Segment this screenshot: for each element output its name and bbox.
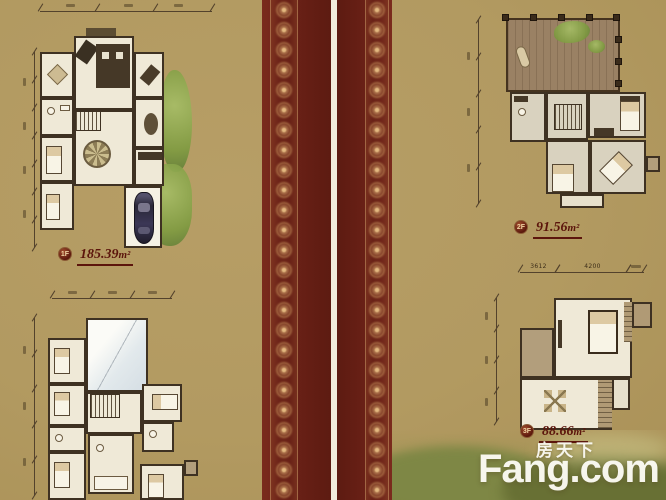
floor2-label: 2F 91.56m²: [514, 220, 582, 239]
dimension-segment: [520, 272, 557, 273]
toilet: [47, 107, 55, 115]
dimension-number-smudge: [23, 122, 26, 130]
dimension-line-top: [52, 298, 172, 299]
dimension-segment: [628, 272, 644, 273]
dimension-number: 3612: [520, 263, 557, 270]
dimension-number-smudge: [485, 356, 488, 364]
terrace-plants: [588, 40, 605, 53]
floorplan-lower-left: [28, 282, 260, 500]
bed: [552, 164, 574, 192]
floor1-area: 185.39m²: [77, 247, 133, 266]
living-room: [40, 52, 74, 98]
dining-room: [134, 98, 164, 148]
stairs: [554, 104, 582, 130]
bathroom: [48, 426, 86, 452]
porch: [646, 156, 660, 172]
dimension-number-smudge: [23, 78, 26, 86]
terrace-post: [615, 58, 622, 65]
floorplan-2f: [462, 8, 664, 214]
dimension-line-top: [40, 11, 212, 12]
dimension-line-left: [478, 20, 479, 204]
dimension-number-smudge: [23, 166, 26, 174]
compass-rose-motif: [83, 140, 111, 168]
bed: [46, 194, 60, 220]
bedroom: [40, 136, 74, 182]
terrace-post: [502, 14, 509, 21]
bathroom: [142, 422, 174, 452]
bed: [148, 474, 164, 498]
hall: [74, 36, 134, 110]
floorplan-brochure: 1F 185.39m²: [0, 0, 666, 500]
closet-room: [632, 302, 652, 328]
dimension-number-smudge: [174, 4, 183, 7]
ornament-band-left: [262, 0, 331, 500]
floor1-label: 1F 185.39m²: [58, 247, 133, 266]
wardrobe: [138, 152, 162, 160]
family-room: [520, 378, 612, 430]
storage-room: [520, 328, 554, 378]
watermark-english: Fang.com: [478, 447, 659, 492]
bedroom: [546, 140, 590, 194]
rug: [140, 64, 161, 86]
balcony: [612, 378, 630, 410]
stair-hall: [546, 92, 588, 140]
stairs: [75, 111, 101, 131]
bedroom: [48, 452, 86, 500]
maid-room: [40, 182, 74, 230]
bed: [152, 394, 178, 410]
terrace-post: [615, 80, 622, 87]
dimension-number-smudge: [485, 398, 488, 406]
dimension-number: 4200: [557, 263, 628, 270]
bedroom: [140, 464, 184, 500]
dimension-number-smudge: [108, 291, 117, 294]
toilet: [55, 434, 63, 442]
dimension-number-smudge: [631, 265, 641, 268]
desk: [594, 128, 614, 136]
rug: [47, 64, 68, 85]
bed: [620, 101, 640, 131]
ornament-medallions: [365, 0, 389, 500]
bed: [599, 151, 633, 185]
floor2-area: 91.56m²: [533, 220, 582, 239]
dimension-number-smudge: [467, 108, 470, 116]
toilet: [149, 430, 157, 438]
dimension-number-smudge: [467, 164, 470, 172]
bed: [54, 348, 70, 374]
garden: [160, 70, 192, 172]
ornament-medallions: [270, 0, 298, 500]
stairs: [90, 394, 120, 418]
dimension-number-smudge: [23, 210, 26, 218]
dimension-line-left: [34, 52, 35, 248]
bathroom: [88, 434, 134, 494]
toilet: [96, 444, 104, 452]
bed: [588, 310, 618, 354]
toilet: [518, 108, 526, 116]
terrace-post: [530, 14, 537, 21]
garage: [124, 186, 162, 248]
dimension-number-smudge: [23, 402, 26, 410]
bedroom: [590, 140, 646, 194]
study: [134, 52, 164, 98]
watermark-logo: 房天下 Fang.com: [478, 436, 666, 498]
dimension-number-smudge: [467, 52, 470, 60]
terrace-post: [613, 14, 620, 21]
floor2-area-number: 91.56: [536, 220, 568, 235]
bathroom: [40, 98, 74, 136]
floor1-area-unit: m²: [119, 249, 131, 261]
closet: [624, 302, 632, 342]
balcony: [560, 194, 604, 208]
game-table: [544, 390, 566, 412]
kitchen-counter: [96, 44, 130, 88]
piano: [75, 40, 99, 65]
closet: [598, 380, 612, 428]
floor2-area-unit: m²: [568, 222, 580, 234]
dining-table: [144, 113, 158, 135]
dimension-number-smudge: [23, 458, 26, 466]
bathroom: [510, 92, 546, 142]
bed: [54, 462, 70, 488]
dimension-number-smudge: [485, 312, 488, 320]
dimension-number-smudge: [66, 4, 75, 7]
floor1-area-number: 185.39: [80, 247, 119, 262]
storage-room: [134, 148, 164, 186]
void-over-living-room: [86, 318, 148, 392]
bedroom: [588, 92, 646, 138]
terrace-post: [615, 36, 622, 43]
dimension-number-smudge: [124, 4, 133, 7]
bedroom: [142, 384, 182, 422]
bedroom: [48, 338, 86, 384]
bathtub: [94, 476, 128, 490]
ornament-band-right: [337, 0, 392, 500]
sink-counter: [514, 96, 528, 102]
master-bedroom: [554, 298, 632, 378]
floorplan-1f: [28, 4, 268, 252]
floor1-badge: 1F: [58, 247, 72, 261]
dimension-number-smudge: [68, 291, 77, 294]
dimension-line-left: [496, 298, 497, 422]
terrace-post: [558, 14, 565, 21]
dimension-line-left: [34, 318, 35, 496]
sink: [60, 105, 70, 111]
terrace-post: [586, 14, 593, 21]
dimension-number-smudge: [23, 346, 26, 354]
floorplan-3f: 3612 4200: [478, 260, 666, 432]
porch: [184, 460, 198, 476]
bed: [46, 146, 62, 174]
floor2-badge: 2F: [514, 220, 528, 234]
dimension-number-smudge: [148, 291, 157, 294]
car: [134, 192, 154, 244]
bedroom: [48, 384, 86, 426]
dimension-segment: [557, 272, 628, 273]
bed: [54, 392, 70, 416]
tv-cabinet: [558, 320, 562, 348]
